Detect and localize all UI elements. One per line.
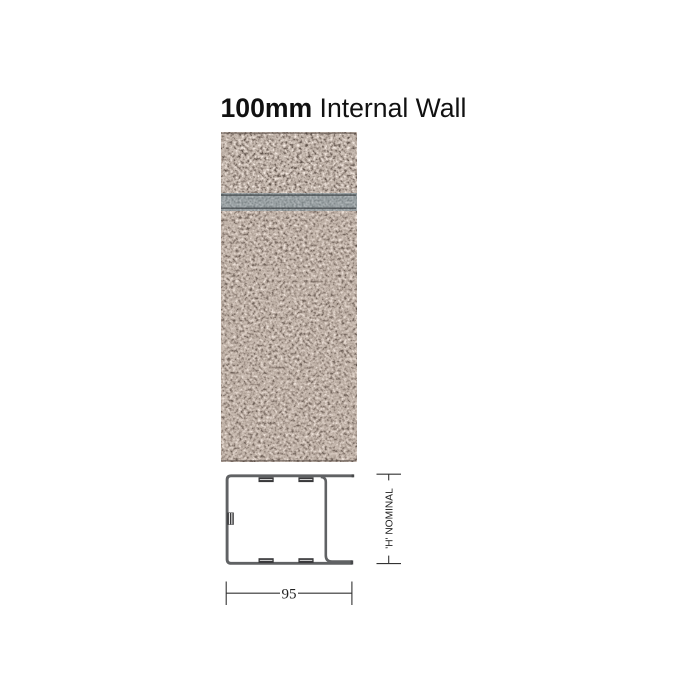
svg-text:95: 95 [282, 586, 297, 602]
svg-text:'H' NOMINAL: 'H' NOMINAL [385, 488, 396, 549]
